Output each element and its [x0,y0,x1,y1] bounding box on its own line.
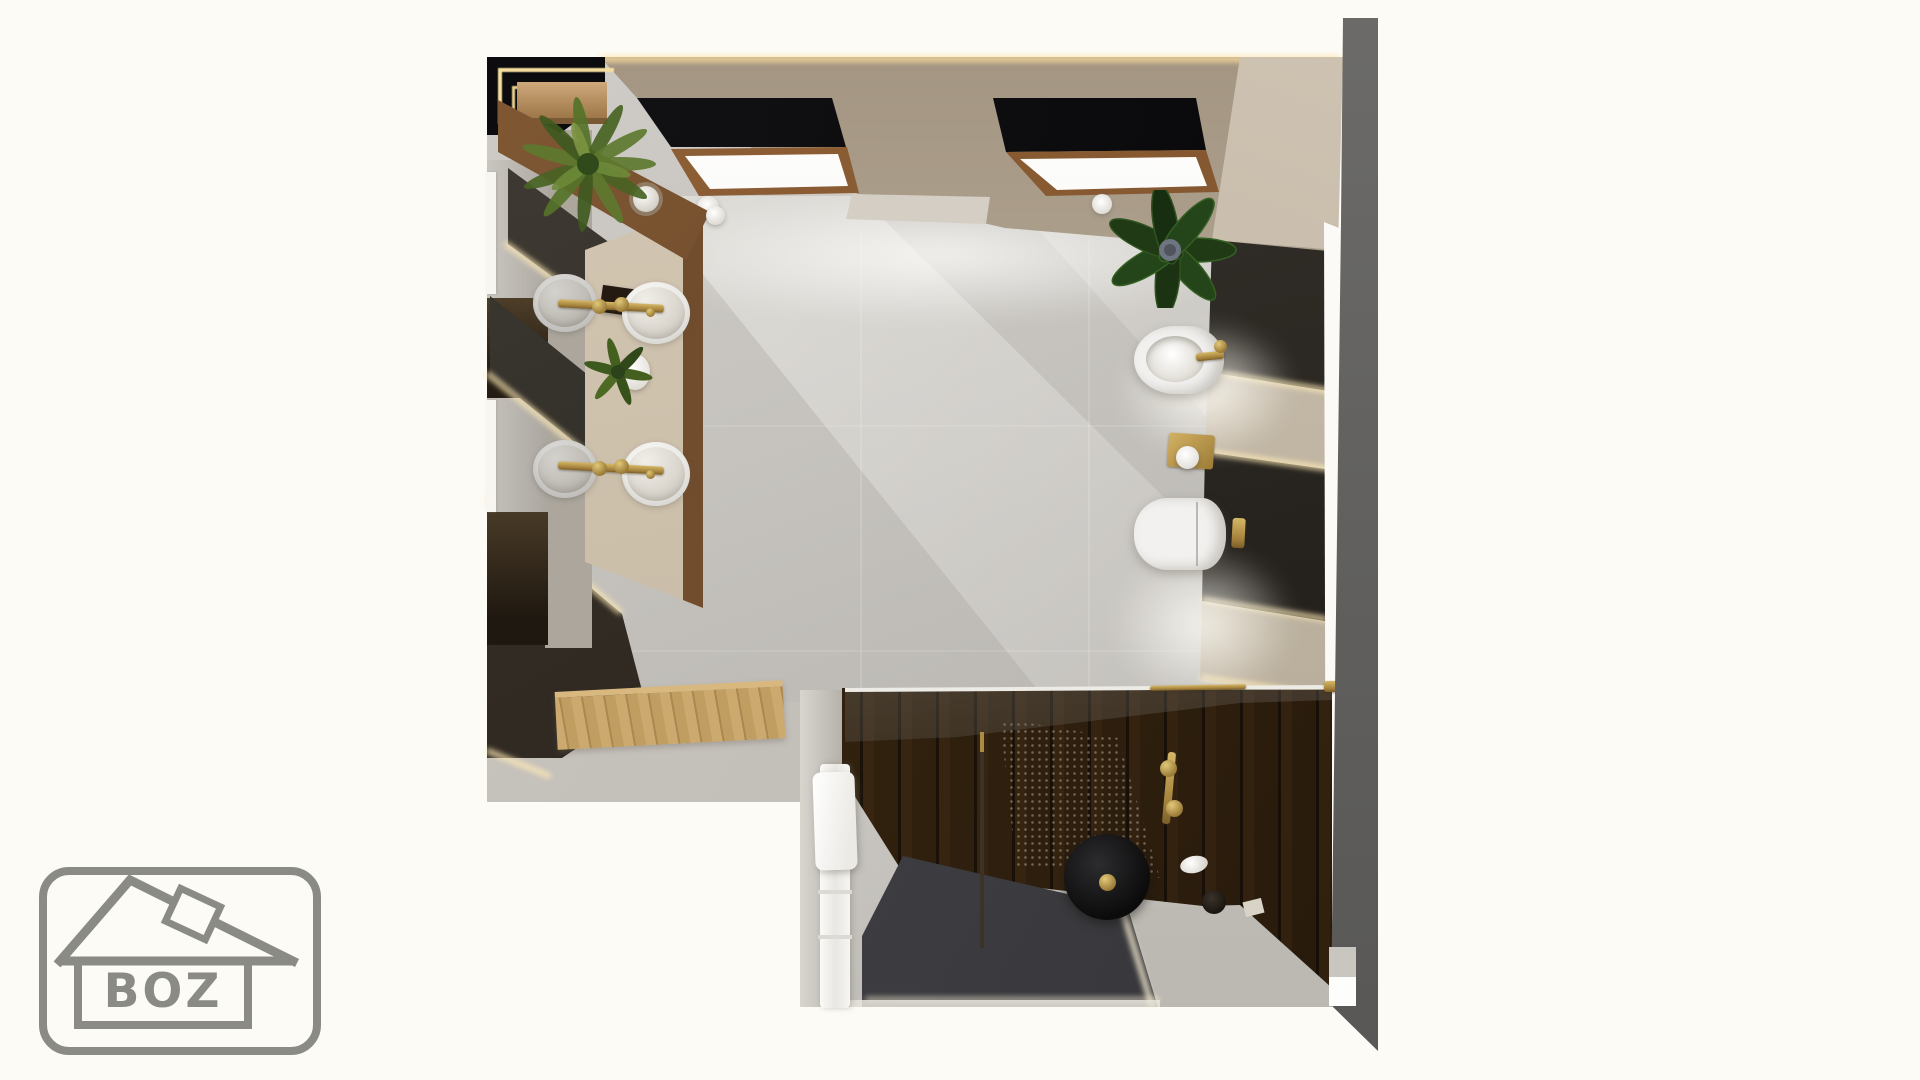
glass-support-pole [980,732,984,948]
basin-drain [646,308,655,317]
brass-faucet-knob [614,297,629,312]
accent-plant [1100,190,1240,308]
ceramic-cup [706,206,725,225]
white-towel [812,771,857,870]
brass-flush-plate [1231,518,1246,549]
toilet [1134,498,1226,570]
fern-plant [512,92,664,232]
shower-valve-knob [1160,760,1177,777]
towel-ladder-rung [818,935,852,939]
house-icon: BOZ [38,866,322,1056]
basin-drain [646,470,655,479]
wooden-bath-mat [555,680,786,750]
brass-faucet-knob [592,299,607,314]
brass-faucet-knob [592,461,607,476]
rain-shower-brass-center [1099,874,1116,891]
shelf-black-jar [1202,890,1226,914]
bidet-brass-knob [1214,340,1227,353]
window-frame-mullion [486,400,496,512]
toilet-seat-seam [1196,502,1198,566]
brass-faucet-knob [614,459,629,474]
led-strip-glow-top-wall [600,56,1340,62]
bathroom-render: BOZ [0,0,1920,1080]
logo-text: BOZ [104,964,223,1019]
small-potted-plant [580,334,662,408]
doorway-notch [1329,947,1356,1006]
towel-ladder-rung [818,890,852,894]
shower-valve-knob [1166,800,1183,817]
left-wall-dark-panel [487,512,548,645]
basin-1 [622,282,690,344]
toilet-paper-roll [1176,446,1199,469]
shower-grout-line [850,1000,1160,1007]
window-frame-mullion [486,172,496,294]
boz-logo: BOZ [38,866,322,1056]
